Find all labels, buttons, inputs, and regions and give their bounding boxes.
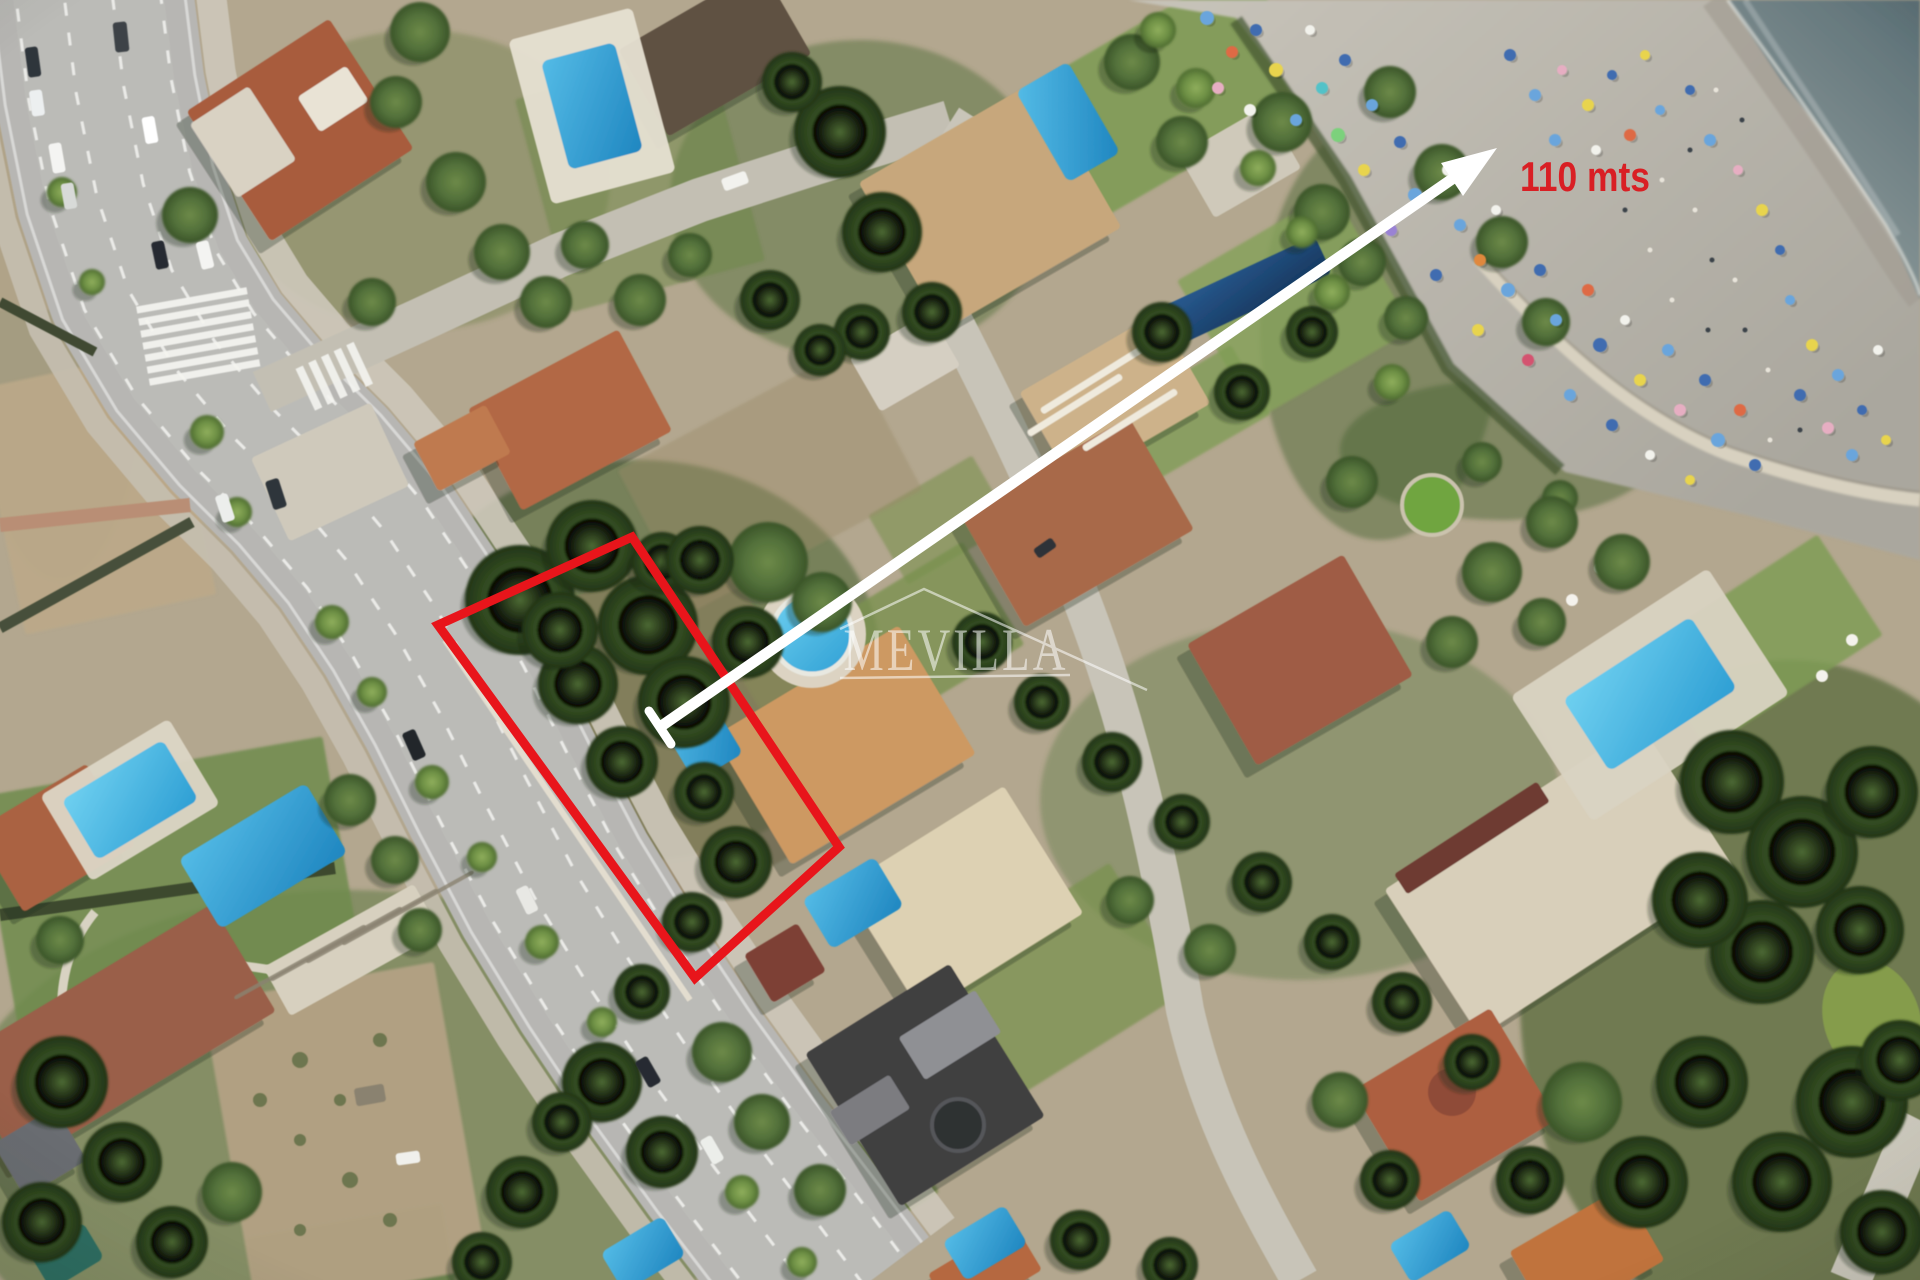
satellite-view: 110 mts MEVILLA	[0, 0, 1920, 1280]
distance-label: 110 mts	[1520, 153, 1650, 200]
aerial-photo: 110 mts MEVILLA	[0, 0, 1920, 1280]
watermark-text: MEVILLA	[844, 617, 1069, 683]
